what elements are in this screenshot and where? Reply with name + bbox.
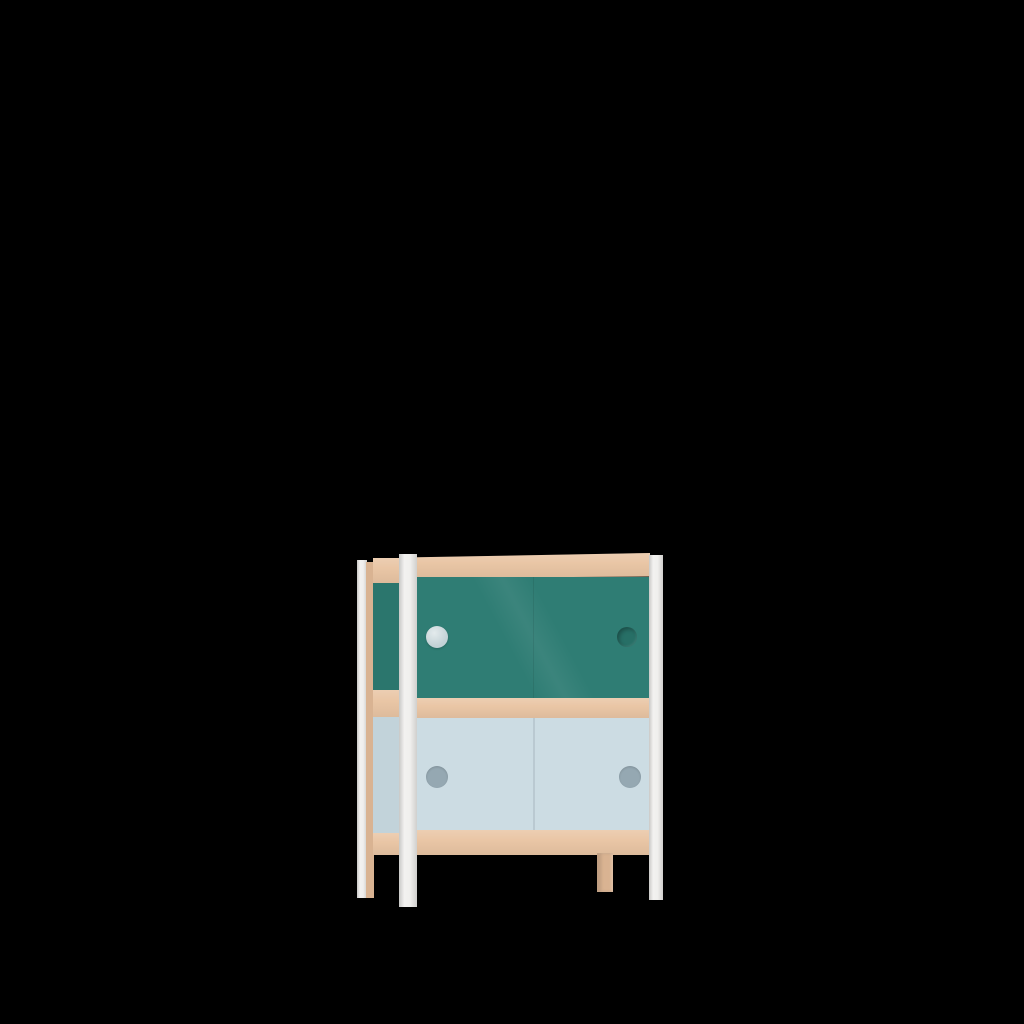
top-rail (417, 553, 650, 578)
lower-left-door-handle (426, 766, 448, 788)
middle-rail (417, 698, 650, 718)
upper-right-door-handle (617, 627, 637, 647)
bottom-rail (417, 830, 650, 855)
side-lower-panel (373, 717, 400, 833)
upper-left-door-handle (426, 626, 448, 648)
upper-door-seam (533, 577, 534, 698)
black-background (0, 0, 1024, 1024)
side-middle-rail (373, 690, 400, 717)
side-upper-panel (373, 583, 400, 690)
front-right-post (649, 555, 663, 900)
side-top-rail (373, 558, 400, 583)
lower-sliding-doors (417, 718, 650, 830)
upper-sliding-doors (417, 577, 650, 698)
front-left-post (399, 554, 417, 907)
lower-door-seam (533, 718, 535, 830)
side-bottom-rail (373, 833, 400, 855)
lower-right-door-handle (619, 766, 641, 788)
rear-right-leg (597, 853, 613, 892)
